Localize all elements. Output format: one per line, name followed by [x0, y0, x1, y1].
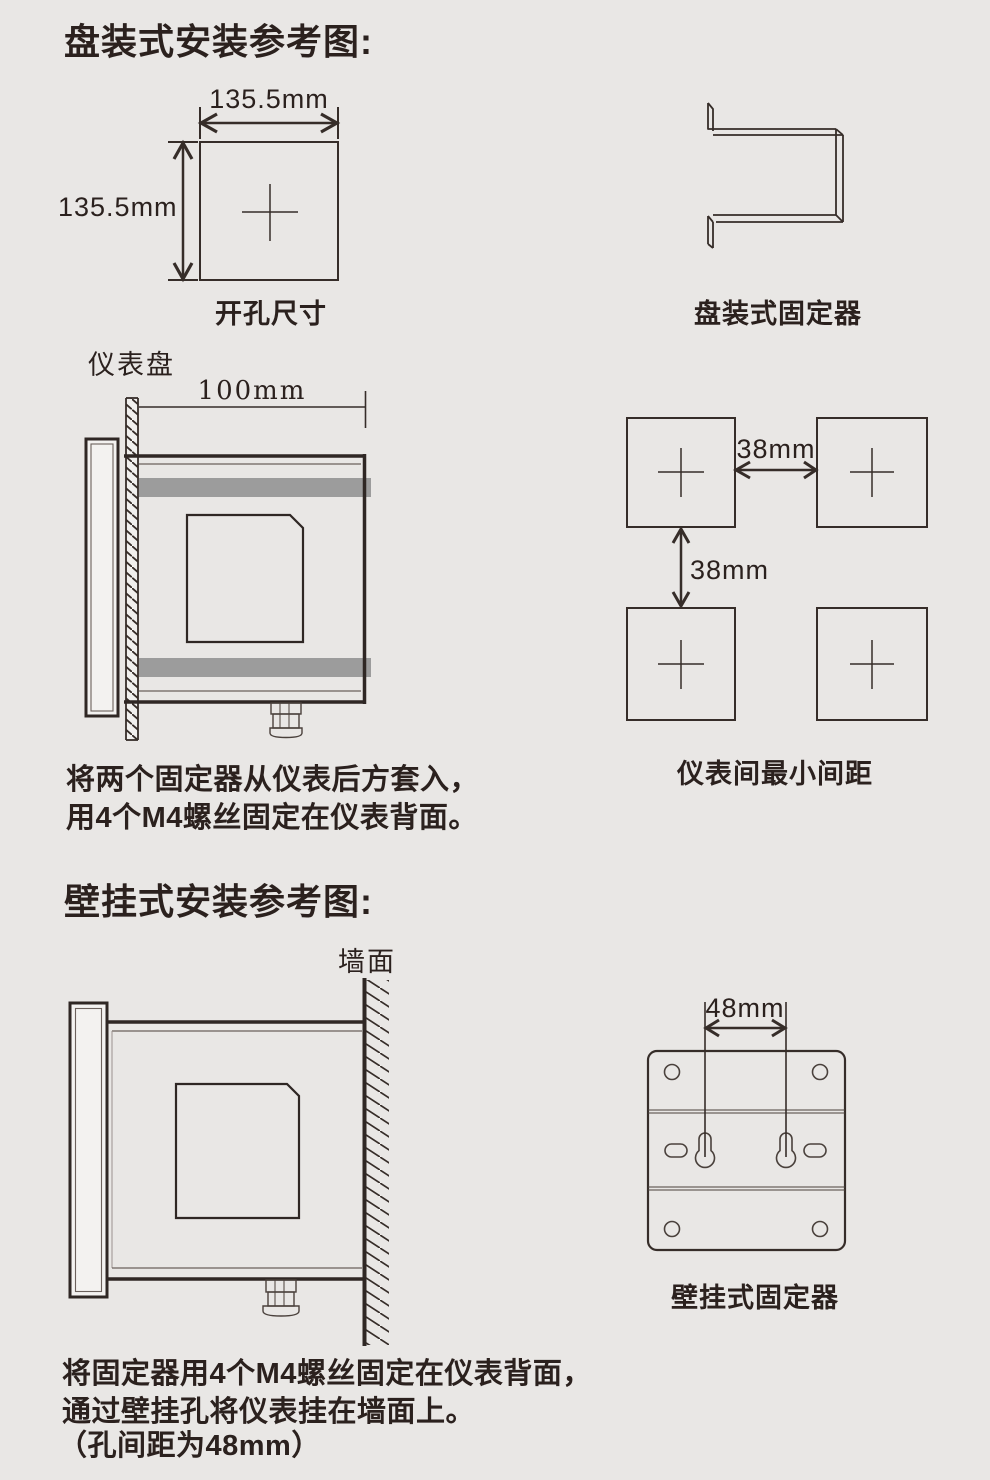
- wall-bracket-drawing: [648, 1002, 845, 1250]
- cutout-height-dimension: 135.5mm: [58, 192, 172, 223]
- spacing-vertical-dimension: 38mm: [690, 555, 769, 586]
- spacing-caption: 仪表间最小间距: [677, 752, 873, 791]
- cutout-caption: 开孔尺寸: [197, 292, 345, 331]
- cutout-width-dimension: 135.5mm: [190, 84, 348, 115]
- panel-bracket-caption: 盘装式固定器: [694, 292, 862, 331]
- panel-side-view: [86, 391, 371, 740]
- wall-note-line3: （孔间距为48mm）: [58, 1422, 321, 1464]
- panel-note-line2: 用4个M4螺丝固定在仪表背面。: [66, 794, 478, 836]
- panel-note-line1: 将两个固定器从仪表后方套入，: [66, 756, 479, 798]
- wall-note-line1: 将固定器用4个M4螺丝固定在仪表背面，: [62, 1350, 592, 1392]
- installation-manual-page: 盘装式安装参考图: 135.5mm 135.5mm 开孔尺寸 盘装式固定器 仪表…: [0, 0, 990, 1480]
- wall-section-title: 壁挂式安装参考图:: [64, 873, 373, 925]
- spacing-horizontal-dimension: 38mm: [726, 434, 826, 465]
- wall-bracket-caption: 壁挂式固定器: [671, 1276, 839, 1315]
- wall-side-view: [70, 978, 389, 1346]
- panel-bracket-drawing: [708, 103, 843, 248]
- cutout-diagram: [168, 107, 338, 280]
- hole-pitch-dimension: 48mm: [693, 993, 797, 1024]
- wall-label: 墙面: [338, 940, 396, 979]
- panel-section-title: 盘装式安装参考图:: [64, 13, 373, 65]
- depth-dimension: 100mm: [139, 376, 365, 406]
